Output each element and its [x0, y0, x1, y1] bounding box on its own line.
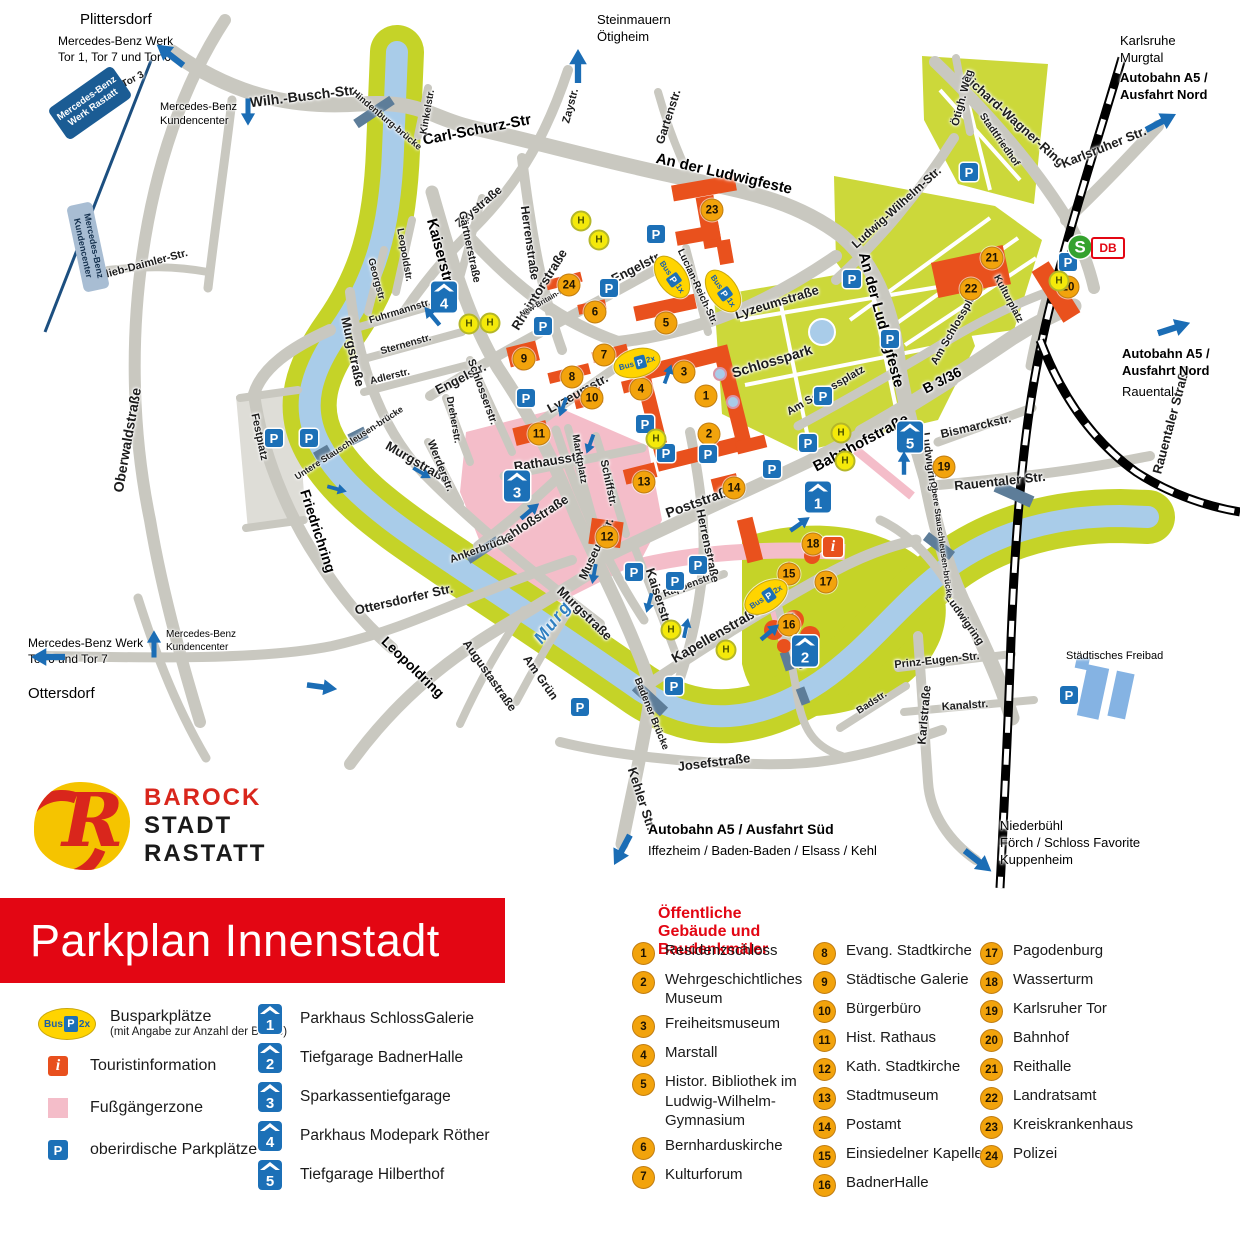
bus-stop-icon: H: [661, 620, 682, 641]
map-marker-3: 3: [673, 361, 696, 384]
barock-stadt-rastatt-logo: R BAROCK STADT RASTATT: [34, 782, 266, 870]
tourist-info-icon: i: [48, 1056, 68, 1076]
destination-label: Niederbühl Förch / Schloss Favorite Kupp…: [1000, 818, 1140, 869]
building-list-item: 1Residenzschloss: [632, 941, 810, 964]
street-label: Rauentaler Straße: [1150, 364, 1193, 475]
parking-icon: P: [881, 330, 899, 348]
building-number: 15: [813, 1145, 836, 1168]
building-label: Pagodenburg: [1013, 941, 1103, 964]
building-list-item: 22Landratsamt: [980, 1086, 1180, 1109]
destination-label: Mercedes-Benz Werk Tor 1, Tor 7 und Tor …: [58, 34, 173, 65]
area-label: Kulturplatz: [991, 273, 1026, 325]
parking-garage-icon-4: 4: [431, 282, 457, 313]
street-label: Sternenstr.: [379, 332, 432, 357]
building-label: Einsiedelner Kapelle: [846, 1144, 983, 1167]
building-number: 3: [632, 1015, 655, 1038]
destination-label: Mercedes-Benz Kundencenter: [166, 628, 236, 654]
street-label: Wilh.-Busch-Str: [249, 82, 355, 111]
map-marker-14: 14: [723, 477, 746, 500]
building-label: Kath. Stadtkirche: [846, 1057, 960, 1080]
area-label: Schlosspark: [730, 341, 814, 381]
building-list-item: 2Wehrgeschichtliches Museum: [632, 970, 810, 1008]
parking-icon: P: [814, 387, 832, 405]
street-label: Leopoldstr.: [394, 227, 415, 282]
street-label: Zaystr.: [560, 87, 581, 125]
map-marker-2: 2: [698, 423, 721, 446]
building-list-item: 20Bahnhof: [980, 1028, 1180, 1051]
bus-stop-icon: H: [646, 429, 667, 450]
building-list-item: 19Karlsruher Tor: [980, 999, 1180, 1022]
building-label: Karlsruher Tor: [1013, 999, 1107, 1022]
parking-garage-icon-3: 3: [504, 471, 530, 502]
legend-symbols: BusP2x Busparkplätze (mit Angabe zur Anz…: [38, 1008, 288, 1160]
building-list-item: 23Kreiskrankenhaus: [980, 1115, 1180, 1138]
bus-stop-icon: H: [831, 423, 852, 444]
destination-label: Rauental: [1122, 384, 1174, 401]
parking-garage-icon-2: 2: [792, 636, 818, 667]
garage-icon: 1: [258, 1004, 282, 1034]
area-label: Murg: [530, 596, 576, 647]
street-label: Leopoldring: [378, 633, 447, 701]
direction-arrow-icon: [605, 830, 640, 870]
mercedes-box: Mercedes-Benz Werk Rastatt: [47, 65, 133, 141]
map-marker-19: 19: [933, 456, 956, 479]
garage-label: Sparkassentiefgarage: [300, 1088, 451, 1106]
legend-garage-row: 4Parkhaus Modepark Röther: [258, 1121, 490, 1151]
building-label: Histor. Bibliothek im Ludwig-Wilhelm-Gym…: [665, 1072, 810, 1130]
street-label: Ötigh. Weg: [949, 68, 976, 127]
building-list-item: 4Marstall: [632, 1043, 810, 1066]
map-marker-8: 8: [561, 366, 584, 389]
building-list-item: 5Histor. Bibliothek im Ludwig-Wilhelm-Gy…: [632, 1072, 810, 1130]
garage-roof-icon: [507, 473, 527, 481]
parking-icon: P: [1060, 686, 1078, 704]
building-number: 18: [980, 971, 1003, 994]
street-label: Lyzeumstraße: [733, 283, 821, 323]
street-label: Ankerbrücke: [448, 532, 516, 567]
street-label: Karlsruher Str.: [1059, 124, 1148, 172]
bus-stop-icon: H: [571, 211, 592, 232]
parking-garage-icon-1: 1: [805, 482, 831, 513]
street-label: Schiffstr.: [597, 459, 619, 508]
building-label: Evang. Stadtkirche: [846, 941, 972, 964]
building-number: 9: [813, 971, 836, 994]
street-label: Bismarckstr.: [939, 412, 1012, 442]
legend-info-label: Touristinformation: [90, 1057, 216, 1075]
garage-roof-icon: [900, 424, 920, 432]
surface-parking-icon: P: [48, 1140, 68, 1160]
building-label: Städtische Galerie: [846, 970, 969, 993]
street-label: Carl-Schurz-Str: [421, 111, 532, 149]
destination-label: Städtisches Freibad: [1066, 649, 1163, 663]
map-marker-5: 5: [655, 312, 678, 335]
legend-pink-label: Fußgängerzone: [90, 1099, 203, 1117]
street-label: Oberwaldstraße: [110, 386, 144, 493]
parking-icon: P: [600, 279, 618, 297]
map-marker-13: 13: [633, 471, 656, 494]
destination-label: Autobahn A5 / Ausfahrt Nord: [1122, 346, 1210, 380]
logo-mark: R: [34, 782, 130, 870]
building-label: Freiheitsmuseum: [665, 1014, 780, 1037]
building-label: Bernharduskirche: [665, 1136, 783, 1159]
building-number: 12: [813, 1058, 836, 1081]
bus-parking-icon: BusP2x: [610, 343, 664, 383]
map-marker-10: 10: [581, 387, 604, 410]
bus-stop-icon: H: [480, 313, 501, 334]
bus-stop-icon: H: [589, 230, 610, 251]
building-label: Polizei: [1013, 1144, 1057, 1167]
garage-icon: 5: [258, 1160, 282, 1190]
building-list-item: 3Freiheitsmuseum: [632, 1014, 810, 1037]
direction-arrow-icon: [306, 676, 339, 699]
db-icon: DB: [1091, 237, 1125, 259]
street-label: Gärtnerstraße: [455, 210, 482, 284]
map-marker-22: 22: [960, 278, 983, 301]
building-number: 20: [980, 1029, 1003, 1052]
building-number: 6: [632, 1137, 655, 1160]
page-title: Parkplan Innenstadt: [30, 915, 440, 967]
street-label: Rauentaler Str.: [954, 470, 1047, 494]
parking-icon: P: [647, 225, 665, 243]
map-marker-16: 16: [778, 614, 801, 637]
map-marker-11: 11: [528, 423, 551, 446]
parking-icon: P: [517, 389, 535, 407]
street-label: Am Grün: [520, 653, 561, 703]
logo-line1: BAROCK: [144, 784, 266, 812]
building-label: Marstall: [665, 1043, 718, 1066]
buildings-column-3: 17Pagodenburg18Wasserturm19Karlsruher To…: [980, 941, 1180, 1173]
street-label: Kinkelstr.: [418, 89, 437, 135]
parking-icon: P: [689, 556, 707, 574]
garage-icon: 2: [258, 1043, 282, 1073]
building-number: 1: [632, 942, 655, 965]
map-marker-6: 6: [584, 301, 607, 324]
legend-p-label: oberirdische Parkplätze: [90, 1141, 257, 1159]
building-number: 10: [813, 1000, 836, 1023]
street-label: Karlstraße: [916, 685, 935, 745]
building-number: 23: [980, 1116, 1003, 1139]
map-marker-21: 21: [981, 247, 1004, 270]
street-label: Friedrichring: [297, 487, 339, 574]
bus-stop-icon: H: [835, 451, 856, 472]
parking-icon: P: [699, 445, 717, 463]
building-list-item: 21Reithalle: [980, 1057, 1180, 1080]
garage-roof-icon: [795, 638, 815, 646]
map-marker-23: 23: [701, 199, 724, 222]
city-map: Wilh.-Busch-StrCarl-Schurz-StrHindenburg…: [0, 0, 1240, 897]
building-list-item: 16BadnerHalle: [813, 1173, 1009, 1196]
building-number: 13: [813, 1087, 836, 1110]
parking-icon: P: [799, 434, 817, 452]
garage-label: Parkhaus Modepark Röther: [300, 1127, 490, 1145]
street-label: Ludwigring: [942, 592, 986, 648]
building-number: 17: [980, 942, 1003, 965]
building-list-item: 7Kulturforum: [632, 1165, 810, 1188]
street-label: Ottersdorfer Str.: [353, 581, 454, 618]
street-label: Prinz-Eugen-Str.: [894, 650, 980, 672]
building-number: 7: [632, 1166, 655, 1189]
building-number: 5: [632, 1073, 655, 1096]
map-marker-9: 9: [513, 348, 536, 371]
sbahn-icon: S: [1069, 236, 1092, 259]
direction-arrow-icon: [897, 451, 912, 475]
building-number: 16: [813, 1174, 836, 1197]
map-marker-17: 17: [815, 571, 838, 594]
street-label: Kanalstr.: [941, 698, 988, 714]
garage-label: Tiefgarage BadnerHalle: [300, 1049, 463, 1067]
map-marker-12: 12: [596, 526, 619, 549]
building-label: Postamt: [846, 1115, 901, 1138]
garage-roof-icon: [808, 484, 828, 492]
parking-icon: P: [300, 429, 318, 447]
street-label: Herrenstraße: [517, 205, 541, 281]
garage-label: Parkhaus SchlossGalerie: [300, 1010, 474, 1028]
building-label: Kreiskrankenhaus: [1013, 1115, 1133, 1138]
legend-garages: 1Parkhaus SchlossGalerie2Tiefgarage Badn…: [258, 1004, 490, 1199]
building-list-item: 17Pagodenburg: [980, 941, 1180, 964]
tourist-info-icon: i: [823, 537, 843, 557]
building-label: Residenzschloss: [665, 941, 778, 964]
pedestrian-zone-swatch: [48, 1098, 68, 1118]
direction-arrow-icon: [1155, 313, 1194, 343]
building-number: 22: [980, 1087, 1003, 1110]
bus-parking-icon: BusP2x: [38, 1008, 96, 1040]
map-marker-18: 18: [802, 533, 825, 556]
building-label: Landratsamt: [1013, 1086, 1096, 1109]
building-label: Reithalle: [1013, 1057, 1071, 1080]
bus-stop-icon: H: [1049, 271, 1070, 292]
legend-garage-row: 3Sparkassentiefgarage: [258, 1082, 490, 1112]
parking-icon: P: [843, 270, 861, 288]
street-label: Gartenstr.: [654, 88, 685, 146]
map-marker-1: 1: [695, 385, 718, 408]
legend-garage-row: 5Tiefgarage Hilberthof: [258, 1160, 490, 1190]
destination-label: Ottersdorf: [28, 684, 95, 704]
title-bar: Parkplan Innenstadt: [0, 898, 505, 983]
building-label: Hist. Rathaus: [846, 1028, 936, 1051]
garage-roof-icon: [434, 284, 454, 292]
building-label: BadnerHalle: [846, 1173, 929, 1196]
logo-monogram: R: [62, 782, 124, 864]
destination-label: Karlsruhe Murgtal: [1120, 33, 1176, 67]
bus-stop-icon: H: [459, 314, 480, 335]
building-list-item: 18Wasserturm: [980, 970, 1180, 993]
street-label: Obere Stauschleusen-brücke: [928, 481, 954, 599]
parking-icon: P: [960, 163, 978, 181]
legend-garage-row: 1Parkhaus SchlossGalerie: [258, 1004, 490, 1034]
parking-icon: P: [534, 317, 552, 335]
destination-label: Steinmauern Ötigheim: [597, 12, 671, 46]
logo-line3: RASTATT: [144, 840, 266, 868]
building-label: Bürgerbüro: [846, 999, 921, 1022]
parking-garage-icon-5: 5: [897, 422, 923, 453]
building-number: 8: [813, 942, 836, 965]
parking-icon: P: [625, 563, 643, 581]
map-overlay: Wilh.-Busch-StrCarl-Schurz-StrHindenburg…: [0, 0, 1240, 897]
garage-icon: 4: [258, 1121, 282, 1151]
bus-stop-icon: H: [716, 640, 737, 661]
building-list-item: 6Bernharduskirche: [632, 1136, 810, 1159]
direction-arrow-icon: [568, 49, 589, 83]
building-number: 2: [632, 971, 655, 994]
mercedes-box: Mercedes-Benz Kundencenter: [66, 201, 110, 292]
street-label: Ludwig-Wilhelm-Str.: [850, 164, 945, 251]
building-label: Wehrgeschichtliches Museum: [665, 970, 810, 1008]
street-label: Kaiserstr.: [423, 217, 457, 288]
street-label: Augustastraße: [459, 638, 519, 715]
parking-icon: P: [665, 677, 683, 695]
building-number: 4: [632, 1044, 655, 1067]
building-number: 11: [813, 1029, 836, 1052]
logo-line2: STADT: [144, 812, 266, 840]
parking-icon: P: [666, 572, 684, 590]
street-label: An der Ludwigfeste: [654, 150, 794, 198]
building-label: Wasserturm: [1013, 970, 1093, 993]
building-label: Stadtmuseum: [846, 1086, 939, 1109]
map-marker-7: 7: [593, 344, 616, 367]
street-label: Josefstraße: [677, 751, 751, 775]
direction-arrow-icon: [326, 480, 349, 497]
street-label: Murgstraße: [337, 316, 366, 388]
street-label: Georgstr.: [365, 257, 388, 303]
building-number: 24: [980, 1145, 1003, 1168]
street-label: B 3/36: [920, 363, 964, 396]
street-label: Hindenburg-brücke: [349, 89, 423, 154]
destination-label: Plittersdorf: [80, 10, 152, 30]
destination-label: Autobahn A5 / Ausfahrt Süd: [648, 820, 834, 838]
direction-arrow-icon: [146, 630, 163, 657]
destination-label: Mercedes-Benz Kundencenter: [160, 100, 237, 129]
street-label: Dreherstr.: [443, 396, 463, 445]
building-label: Bahnhof: [1013, 1028, 1069, 1051]
direction-arrow-icon: [958, 842, 998, 879]
parkplan-poster: Wilh.-Busch-StrCarl-Schurz-StrHindenburg…: [0, 0, 1240, 1240]
legend-garage-row: 2Tiefgarage BadnerHalle: [258, 1043, 490, 1073]
building-list-item: 24Polizei: [980, 1144, 1180, 1167]
destination-label: Iffezheim / Baden-Baden / Elsass / Kehl: [648, 843, 877, 860]
street-label: Badstr.: [855, 689, 890, 717]
garage-label: Tiefgarage Hilberthof: [300, 1166, 444, 1184]
building-number: 19: [980, 1000, 1003, 1023]
garage-icon: 3: [258, 1082, 282, 1112]
parking-icon: P: [265, 429, 283, 447]
map-marker-4: 4: [630, 378, 653, 401]
building-label: Kulturforum: [665, 1165, 743, 1188]
building-number: 14: [813, 1116, 836, 1139]
parking-icon: P: [571, 698, 589, 716]
street-label: Adlerstr.: [369, 367, 411, 388]
parking-icon: P: [763, 460, 781, 478]
buildings-column-1: 1Residenzschloss2Wehrgeschichtliches Mus…: [632, 941, 810, 1194]
map-marker-24: 24: [558, 274, 581, 297]
destination-label: Autobahn A5 / Ausfahrt Nord: [1120, 70, 1208, 104]
building-number: 21: [980, 1058, 1003, 1081]
